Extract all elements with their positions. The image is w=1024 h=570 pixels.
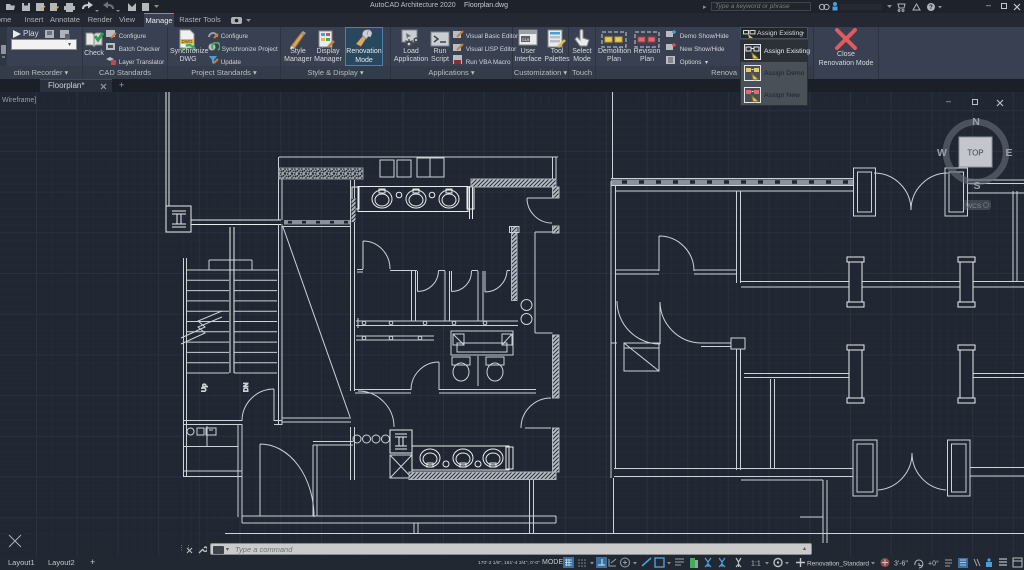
svg-text:E: E xyxy=(1005,147,1012,159)
svg-text:N: N xyxy=(972,116,980,128)
svg-text:1:1: 1:1 xyxy=(751,561,761,568)
svg-text:CUI: CUI xyxy=(522,37,529,42)
svg-text:DWG: DWG xyxy=(182,39,193,44)
svg-text:+0°: +0° xyxy=(928,560,939,568)
svg-text:Renovation_Standard: Renovation_Standard xyxy=(807,561,869,568)
svg-text:TOP: TOP xyxy=(967,149,983,158)
svg-text:3'-6": 3'-6" xyxy=(894,561,908,568)
svg-text:DN: DN xyxy=(243,382,250,392)
svg-text:W: W xyxy=(937,147,947,159)
svg-text:WCS: WCS xyxy=(966,203,982,210)
svg-text:?: ? xyxy=(929,5,933,11)
svg-text:Up: Up xyxy=(201,383,208,392)
svg-text:S: S xyxy=(973,180,980,192)
